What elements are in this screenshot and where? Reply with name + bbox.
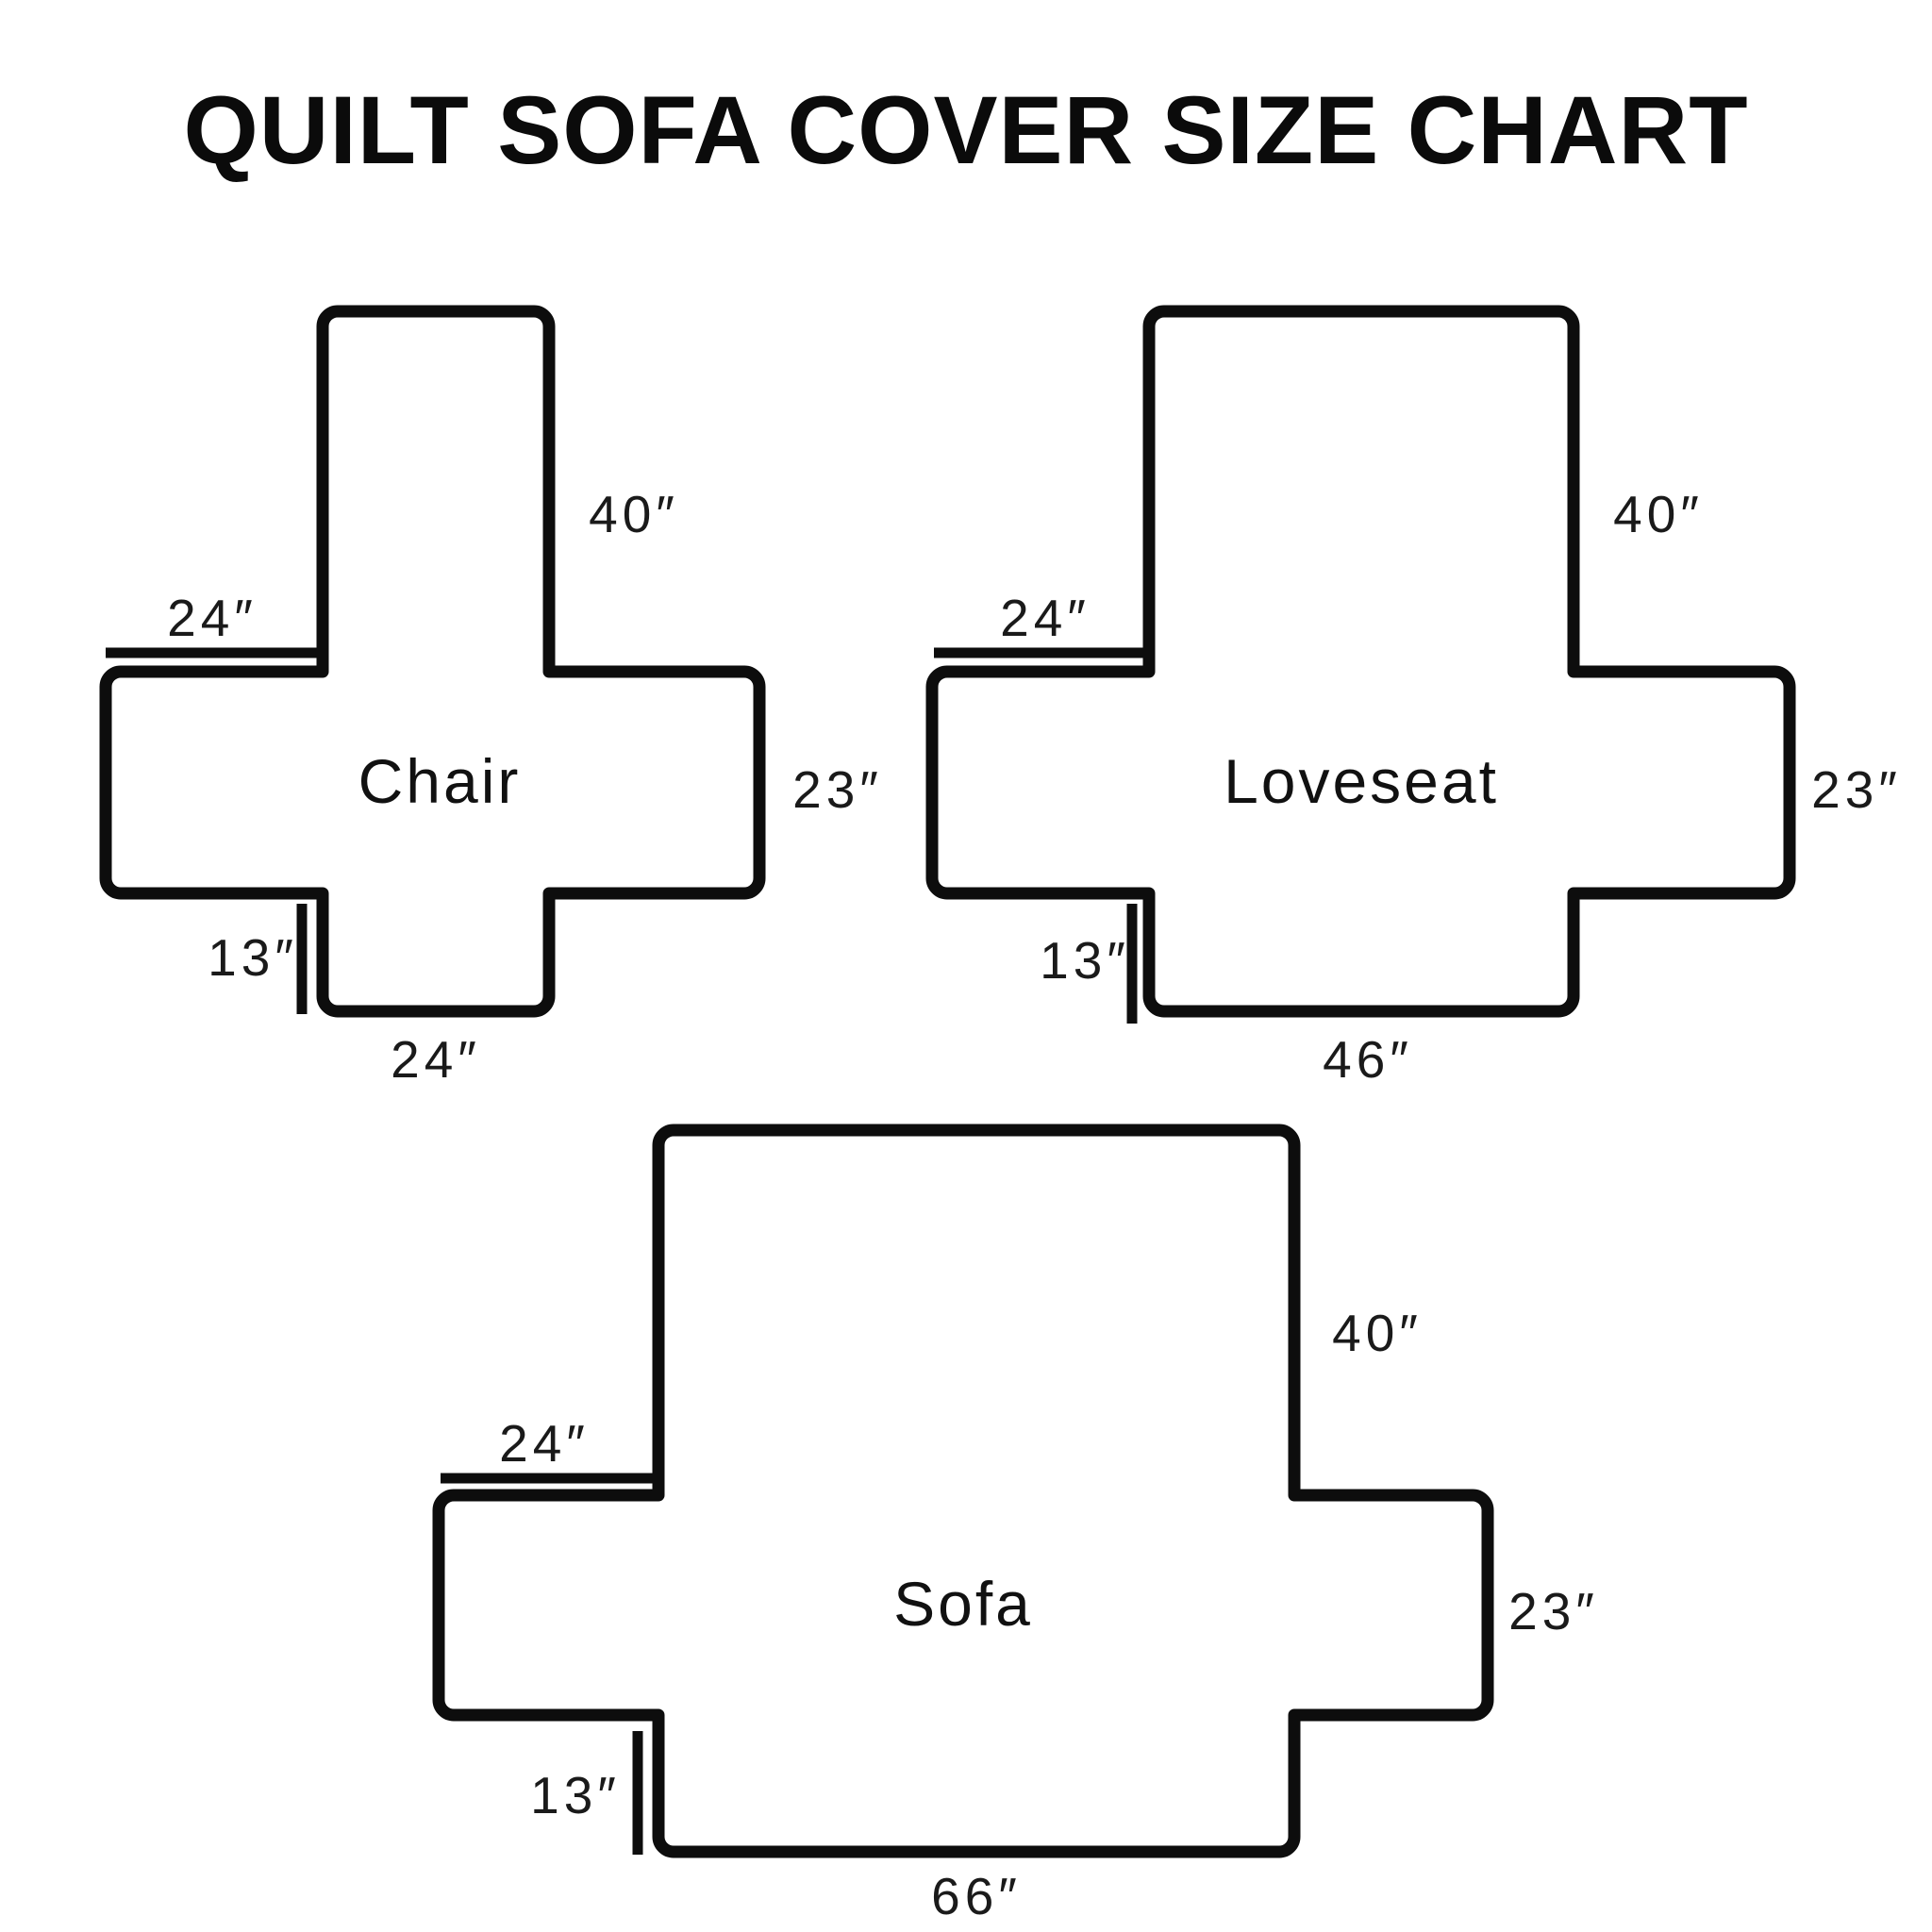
chair-name-label: Chair (358, 745, 522, 817)
chair-arm-top-width-label: 24″ (167, 588, 258, 648)
sofa-side-depth-label: 23″ (1508, 1581, 1599, 1641)
loveseat-side-depth-label: 23″ (1811, 759, 1902, 820)
chair-outline (106, 311, 759, 1011)
chair-back-height-label: 40″ (589, 484, 679, 544)
loveseat-skirt-height-label: 13″ (1040, 930, 1130, 991)
sofa-bottom-width-label: 66″ (931, 1866, 1022, 1926)
sofa-name-label: Sofa (893, 1568, 1033, 1640)
chair-skirt-height-label: 13″ (208, 927, 298, 988)
loveseat-name-label: Loveseat (1224, 745, 1499, 817)
loveseat-back-height-label: 40″ (1613, 484, 1704, 544)
loveseat-bottom-width-label: 46″ (1323, 1029, 1413, 1090)
sofa-skirt-height-label: 13″ (530, 1765, 621, 1825)
chair-side-depth-label: 23″ (792, 759, 883, 820)
loveseat-arm-top-width-label: 24″ (1000, 588, 1091, 648)
sofa-outline (439, 1130, 1488, 1852)
loveseat-outline (932, 311, 1790, 1011)
size-chart-page: QUILT SOFA COVER SIZE CHART Chair 24″ 40… (0, 0, 1932, 1932)
chair-bottom-width-label: 24″ (391, 1029, 481, 1090)
sofa-arm-top-width-label: 24″ (499, 1413, 590, 1474)
sofa-back-height-label: 40″ (1332, 1303, 1423, 1363)
